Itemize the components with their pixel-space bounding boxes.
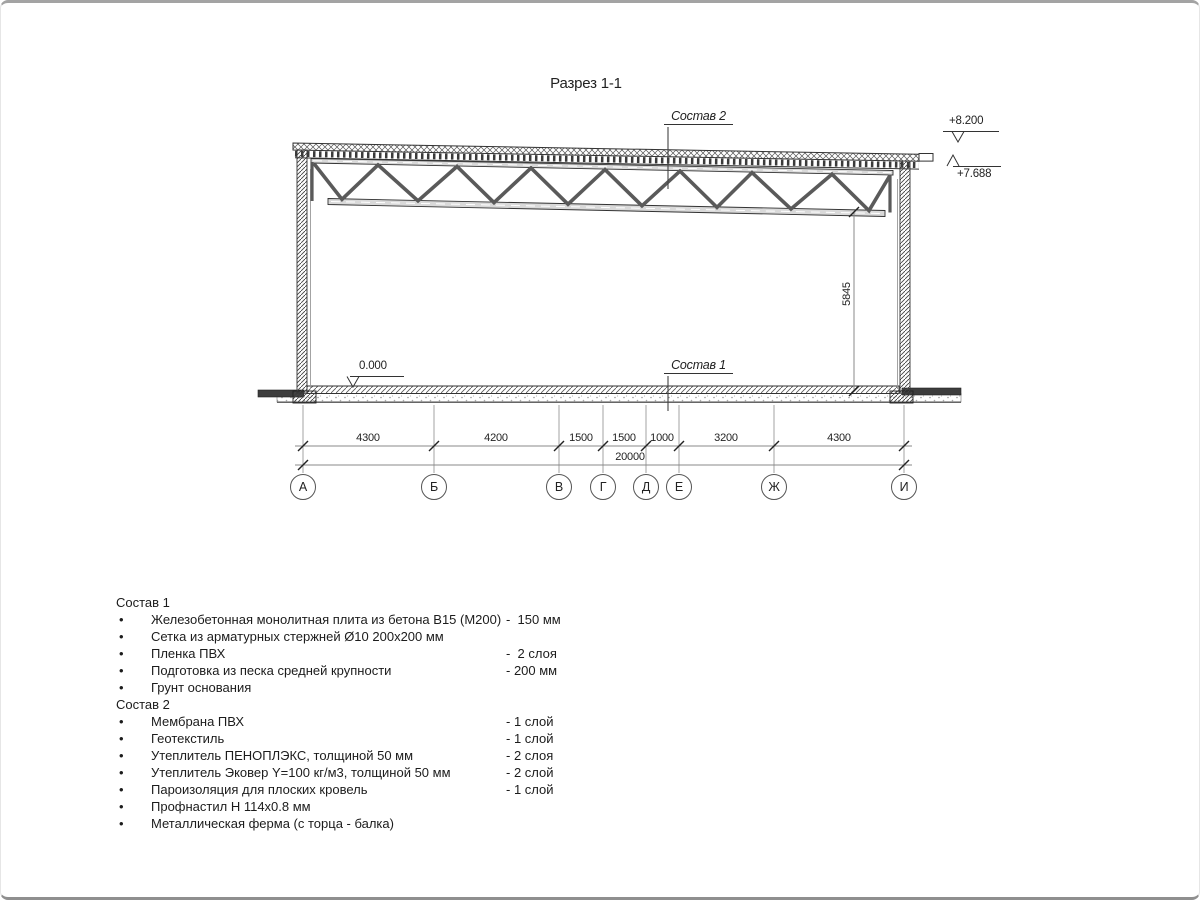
elevation-marker-floor — [347, 377, 404, 388]
dimension-value: 1000 — [640, 432, 684, 444]
dimension-total: 20000 — [602, 451, 658, 463]
material-item: Пароизоляция для плоских кровель - 1 сло… — [116, 781, 636, 798]
material-item: Мембрана ПВХ - 1 слой — [116, 713, 636, 730]
materials-sostav2-title: Состав 2 — [116, 696, 636, 713]
drawing-title: Разрез 1-1 — [496, 75, 676, 92]
material-label: Подготовка из песка средней крупности — [151, 663, 391, 678]
elevation-marker-roof-edge — [947, 155, 1001, 167]
material-value: - 200 мм — [506, 662, 557, 679]
elevation-marker-top — [943, 132, 999, 143]
material-label: Грунт основания — [151, 680, 251, 695]
material-value: - 1 слой — [506, 781, 554, 798]
floor-slab — [307, 386, 899, 394]
material-item: Грунт основания — [116, 679, 636, 696]
dimension-value: 4200 — [474, 432, 518, 444]
elevation-roof-edge: +7.688 — [957, 168, 991, 180]
material-item: Утеплитель Эковер Y=100 кг/м3, толщиной … — [116, 764, 636, 781]
floor-sand-layer — [277, 394, 961, 403]
material-item: Подготовка из песка средней крупности - … — [116, 662, 636, 679]
left-wall — [297, 150, 311, 393]
material-label: Утеплитель ПЕНОПЛЭКС, толщиной 50 мм — [151, 748, 413, 763]
material-value: - 1 слой — [506, 713, 554, 730]
material-label: Железобетонная монолитная плита из бетон… — [151, 612, 501, 627]
axis-marker-b: Б — [421, 474, 447, 500]
drawing-canvas: Разрез 1-1 Состав 2 Состав 1 +8.200 +7.6… — [0, 0, 1200, 900]
material-item: Геотекстиль - 1 слой — [116, 730, 636, 747]
elevation-top: +8.200 — [949, 115, 983, 127]
roof-composition-label: Состав 2 — [664, 109, 733, 125]
axis-marker-v: В — [546, 474, 572, 500]
material-label: Утеплитель Эковер Y=100 кг/м3, толщиной … — [151, 765, 451, 780]
material-item: Пленка ПВХ - 2 слоя — [116, 645, 636, 662]
materials-list: Состав 1 Железобетонная монолитная плита… — [116, 594, 636, 832]
material-item: Сетка из арматурных стержней Ø10 200х200… — [116, 628, 636, 645]
material-label: Пленка ПВХ — [151, 646, 225, 661]
dimension-value: 4300 — [346, 432, 390, 444]
material-label: Пароизоляция для плоских кровель — [151, 782, 368, 797]
floor-composition-label: Состав 1 — [664, 358, 733, 374]
dimension-value: 1500 — [559, 432, 603, 444]
material-label: Сетка из арматурных стержней Ø10 200х200… — [151, 629, 444, 644]
height-dimension: 5845 — [841, 282, 853, 306]
axis-marker-a: А — [290, 474, 316, 500]
axis-marker-g: Г — [590, 474, 616, 500]
axis-marker-i: И — [891, 474, 917, 500]
dimension-value: 4300 — [817, 432, 861, 444]
dimension-value: 3200 — [704, 432, 748, 444]
material-value: - 150 мм — [506, 611, 561, 628]
material-label: Мембрана ПВХ — [151, 714, 244, 729]
material-value: - 2 слой — [506, 764, 554, 781]
material-value: - 1 слой — [506, 730, 554, 747]
material-value: - 2 слоя — [506, 747, 553, 764]
material-item: Железобетонная монолитная плита из бетон… — [116, 611, 636, 628]
material-item: Металлическая ферма (с торца - балка) — [116, 815, 636, 832]
axis-marker-d: Д — [633, 474, 659, 500]
axis-marker-zh: Ж — [761, 474, 787, 500]
material-item: Профнастил Н 114х0.8 мм — [116, 798, 636, 815]
material-label: Геотекстиль — [151, 731, 224, 746]
right-wall — [898, 161, 911, 393]
material-value: - 2 слоя — [506, 645, 557, 662]
material-label: Профнастил Н 114х0.8 мм — [151, 799, 311, 814]
material-item: Утеплитель ПЕНОПЛЭКС, толщиной 50 мм - 2… — [116, 747, 636, 764]
elevation-floor: 0.000 — [359, 360, 387, 372]
axis-marker-e: Е — [666, 474, 692, 500]
material-label: Металлическая ферма (с торца - балка) — [151, 816, 394, 831]
materials-sostav1-title: Состав 1 — [116, 594, 636, 611]
